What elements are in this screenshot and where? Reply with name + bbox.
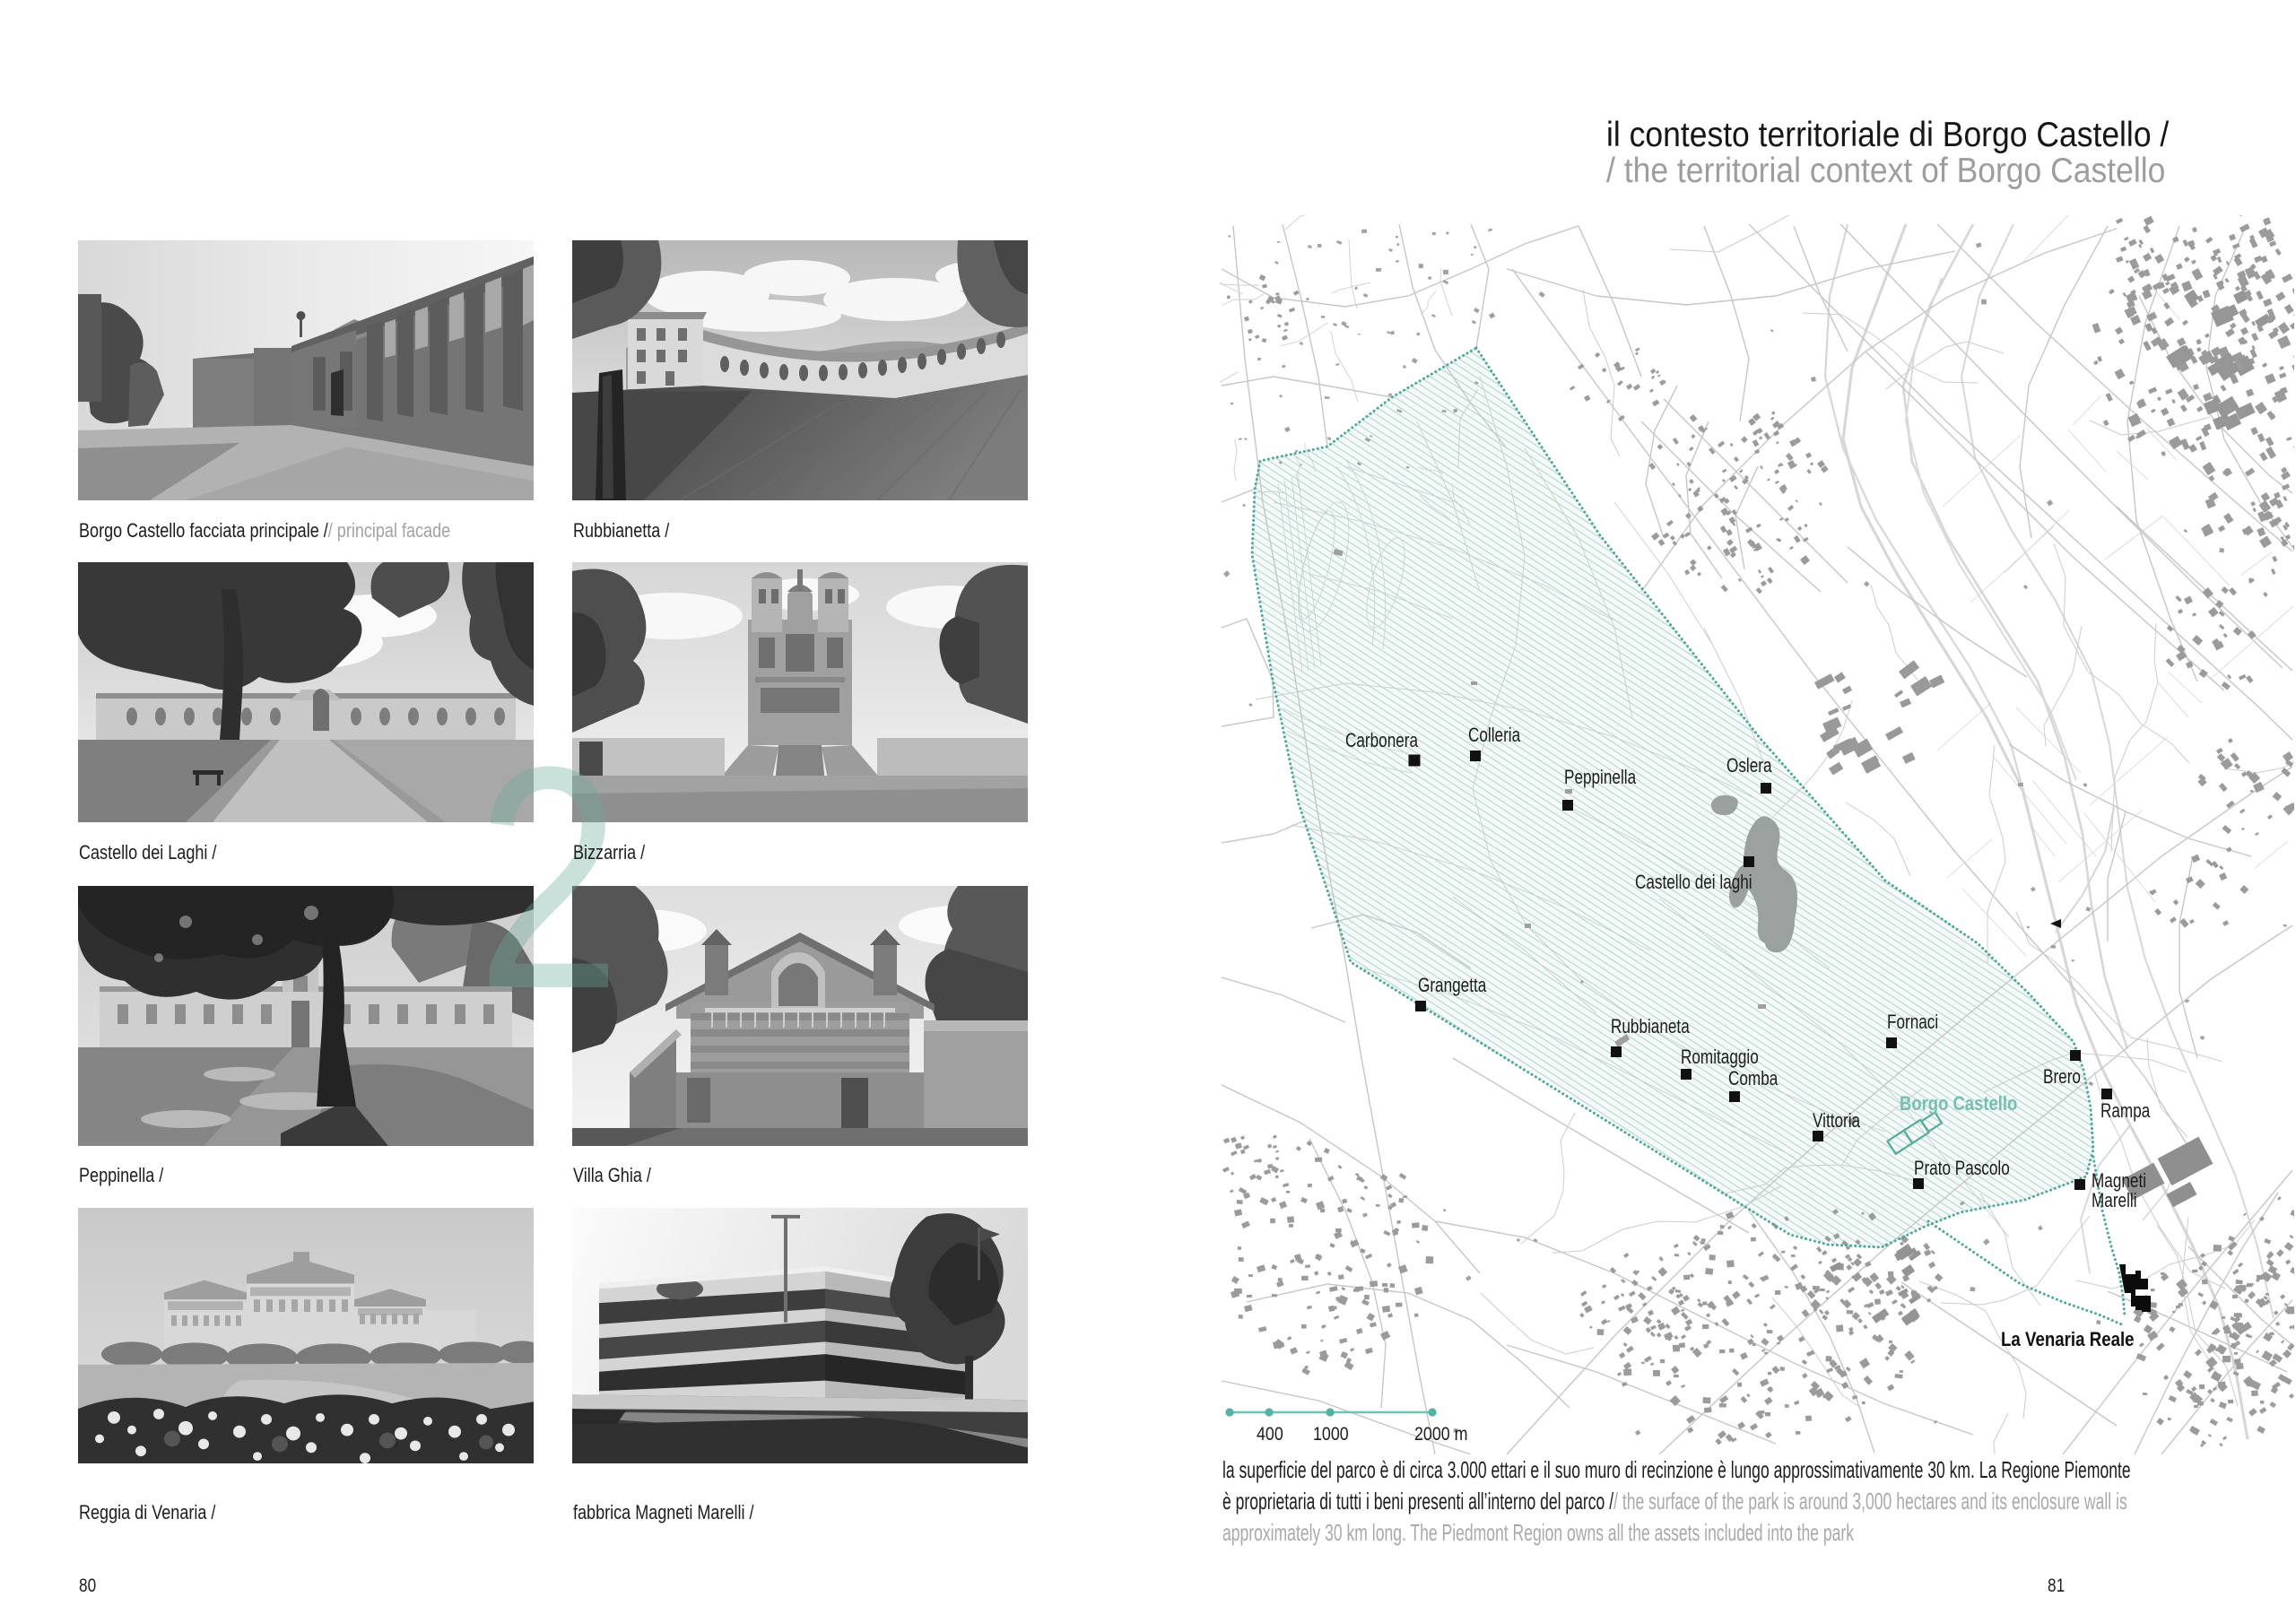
svg-text:Fornaci: Fornaci xyxy=(1887,1011,1938,1034)
svg-text:Comba: Comba xyxy=(1728,1068,1778,1090)
svg-text:Oslera: Oslera xyxy=(1726,755,1772,777)
svg-text:La Venaria Reale: La Venaria Reale xyxy=(2001,1330,2135,1351)
svg-text:Castello dei laghi: Castello dei laghi xyxy=(1635,872,1752,894)
svg-text:Brero: Brero xyxy=(2043,1066,2081,1089)
svg-text:Romitaggio: Romitaggio xyxy=(1681,1046,1759,1069)
svg-text:Carbonera: Carbonera xyxy=(1345,730,1418,752)
svg-text:Marelli: Marelli xyxy=(2092,1190,2137,1212)
svg-text:Vittoria: Vittoria xyxy=(1813,1110,1860,1133)
svg-text:1000: 1000 xyxy=(1313,1424,1349,1445)
svg-text:2000 m: 2000 m xyxy=(1414,1424,1468,1445)
svg-text:Rubbianeta: Rubbianeta xyxy=(1611,1016,1690,1038)
svg-text:Peppinella: Peppinella xyxy=(1564,767,1636,789)
svg-text:Grangetta: Grangetta xyxy=(1418,975,1486,997)
svg-text:Borgo Castello: Borgo Castello xyxy=(1900,1094,2017,1115)
svg-text:Prato Pascolo: Prato Pascolo xyxy=(1914,1158,2010,1180)
svg-text:400: 400 xyxy=(1257,1424,1283,1445)
svg-text:Rampa: Rampa xyxy=(2100,1100,2150,1123)
svg-text:Colleria: Colleria xyxy=(1468,725,1520,747)
svg-text:Magneti: Magneti xyxy=(2092,1170,2146,1193)
